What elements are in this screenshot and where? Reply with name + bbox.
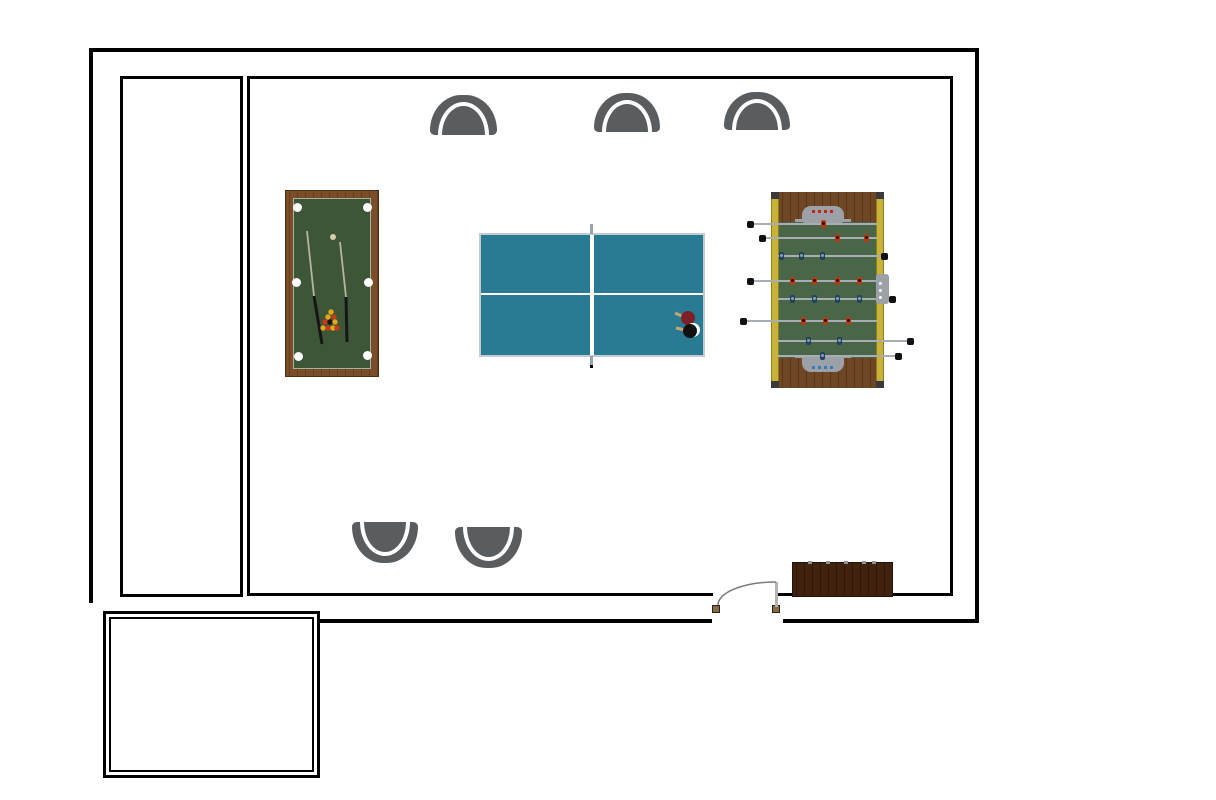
server-dot <box>879 282 882 285</box>
cabinet[interactable] <box>792 562 893 597</box>
chair[interactable] <box>352 522 418 563</box>
foosball-player-head <box>791 279 794 282</box>
foosball-ball-server[interactable] <box>876 274 889 304</box>
wall-segment <box>120 594 243 597</box>
foosball-player-head <box>821 354 824 357</box>
pool-pocket <box>292 278 301 287</box>
score-bead <box>818 366 821 369</box>
foosball-player-head <box>838 339 841 342</box>
pool-pocket <box>364 278 373 287</box>
server-dot <box>879 289 882 292</box>
foosball-rod-handle[interactable] <box>889 296 896 303</box>
foosball-rod-handle[interactable] <box>895 353 902 360</box>
foosball-rod-handle[interactable] <box>740 318 747 325</box>
foosball-rod[interactable] <box>778 255 886 257</box>
wall-segment <box>89 48 979 52</box>
foosball-player-head <box>807 339 810 342</box>
foosball-rod-handle[interactable] <box>747 278 754 285</box>
pool-pocket <box>293 203 302 212</box>
foosball-rod-handle[interactable] <box>747 221 754 228</box>
server-dot <box>879 296 882 299</box>
foosball-player-head <box>780 254 783 257</box>
wall-segment <box>247 76 953 79</box>
foosball-rail-cap <box>771 192 779 199</box>
score-bead <box>812 210 815 213</box>
foosball-rail-cap <box>771 381 779 388</box>
cabinet-hinge <box>872 561 876 564</box>
annex-room-inner-wall <box>109 617 314 772</box>
foosball-side-rail <box>771 192 779 388</box>
score-bead <box>824 366 827 369</box>
wall-segment <box>950 76 953 596</box>
foosball-player-head <box>813 279 816 282</box>
foosball-player-head <box>822 222 825 225</box>
score-bead <box>830 366 833 369</box>
foosball-player-head <box>858 297 861 300</box>
foosball-rod[interactable] <box>765 237 877 239</box>
door-swing-arc <box>718 582 776 605</box>
chair[interactable] <box>430 95 497 135</box>
cabinet-hinge <box>808 561 812 564</box>
ping-pong-net-dot <box>590 365 593 368</box>
score-bead <box>824 210 827 213</box>
foosball-rod-handle[interactable] <box>759 235 766 242</box>
chair[interactable] <box>455 527 522 568</box>
foosball-rail-cap <box>876 192 884 199</box>
score-bead <box>830 210 833 213</box>
wall-segment <box>247 76 250 596</box>
floor-plan <box>0 0 1216 800</box>
door-panel[interactable] <box>775 582 778 607</box>
chair[interactable] <box>594 93 660 132</box>
wall-segment <box>89 48 93 603</box>
score-bead <box>812 366 815 369</box>
ping-pong-net-line <box>590 235 594 355</box>
cabinet-hinge <box>826 561 830 564</box>
foosball-rod[interactable] <box>778 355 900 357</box>
foosball-player-head <box>836 279 839 282</box>
cabinet-hinge <box>844 561 848 564</box>
wall-segment <box>120 76 123 597</box>
wall-segment <box>320 619 712 623</box>
foosball-player-head <box>847 319 850 322</box>
foosball-player-head <box>813 297 816 300</box>
wall-segment <box>240 76 243 597</box>
foosball-rail-cap <box>876 381 884 388</box>
foosball-player-head <box>836 236 839 239</box>
foosball-rod[interactable] <box>778 340 912 342</box>
foosball-player-head <box>865 236 868 239</box>
wall-segment <box>975 48 979 623</box>
foosball-player-head <box>858 279 861 282</box>
foosball-player-head <box>800 254 803 257</box>
door-jamb <box>712 605 720 613</box>
foosball-rod[interactable] <box>754 223 877 225</box>
score-bead <box>818 210 821 213</box>
foosball-field <box>779 222 876 358</box>
foosball-player-head <box>836 297 839 300</box>
foosball-player-head <box>821 254 824 257</box>
foosball-player-head <box>802 319 805 322</box>
pool-pocket <box>294 352 303 361</box>
foosball-rod-handle[interactable] <box>881 253 888 260</box>
cabinet-hinge <box>862 561 866 564</box>
foosball-player-head <box>824 319 827 322</box>
foosball-rod-handle[interactable] <box>907 338 914 345</box>
pool-pocket <box>363 203 372 212</box>
pool-pocket <box>363 351 372 360</box>
chair[interactable] <box>724 92 790 130</box>
foosball-player-head <box>791 297 794 300</box>
pool-table-felt <box>293 198 371 369</box>
wall-segment <box>783 619 979 623</box>
ping-pong-net-overhang-top <box>590 224 593 234</box>
foosball-rod[interactable] <box>746 320 877 322</box>
wall-segment <box>120 76 243 79</box>
wall-segment <box>247 593 713 596</box>
